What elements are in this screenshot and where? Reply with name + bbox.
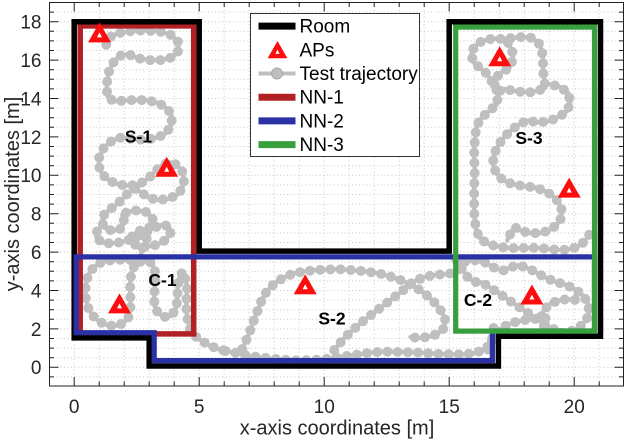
svg-text:10: 10 xyxy=(314,397,335,418)
svg-text:18: 18 xyxy=(20,13,41,34)
svg-text:C-2: C-2 xyxy=(464,290,492,310)
svg-text:NN-1: NN-1 xyxy=(300,88,344,109)
svg-text:20: 20 xyxy=(564,397,585,418)
svg-text:4: 4 xyxy=(31,281,42,302)
svg-text:S-3: S-3 xyxy=(515,128,543,148)
svg-text:Room: Room xyxy=(300,17,351,38)
svg-text:x-axis coordinates [m]: x-axis coordinates [m] xyxy=(240,418,435,440)
svg-text:15: 15 xyxy=(439,397,460,418)
svg-text:8: 8 xyxy=(31,205,42,226)
svg-text:0: 0 xyxy=(31,358,42,379)
svg-text:6: 6 xyxy=(31,243,42,264)
svg-text:Test trajectory: Test trajectory xyxy=(300,64,419,85)
svg-text:16: 16 xyxy=(20,51,41,72)
svg-text:0: 0 xyxy=(69,397,80,418)
svg-text:C-1: C-1 xyxy=(148,270,176,290)
svg-text:S-1: S-1 xyxy=(125,127,153,147)
svg-text:NN-2: NN-2 xyxy=(300,111,344,132)
svg-text:5: 5 xyxy=(194,397,205,418)
svg-text:y-axis coordinates [m]: y-axis coordinates [m] xyxy=(2,97,24,292)
svg-text:2: 2 xyxy=(31,320,42,341)
svg-text:APs: APs xyxy=(300,40,335,61)
svg-text:S-2: S-2 xyxy=(318,309,346,329)
svg-text:NN-3: NN-3 xyxy=(300,135,344,156)
